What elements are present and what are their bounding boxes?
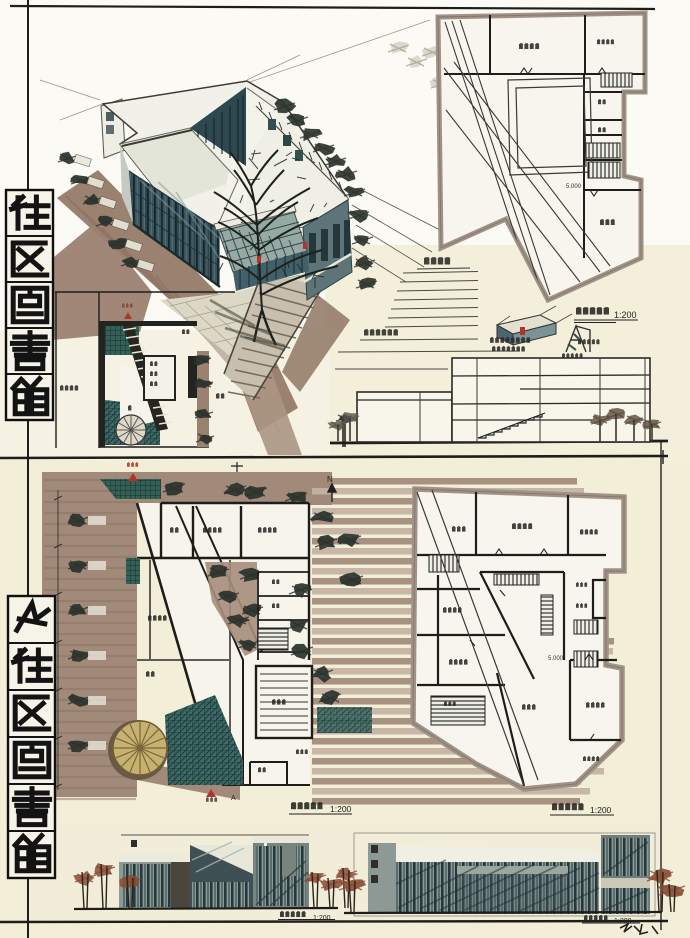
- svg-text:1:200: 1:200: [330, 804, 352, 814]
- svg-text:5.000: 5.000: [548, 656, 564, 662]
- svg-text:1:200: 1:200: [614, 918, 632, 925]
- svg-text:A: A: [231, 795, 236, 802]
- svg-text:1:200: 1:200: [614, 310, 637, 320]
- svg-text:1:200: 1:200: [590, 805, 612, 815]
- svg-text:N: N: [327, 475, 333, 484]
- svg-text:1:200: 1:200: [313, 915, 331, 922]
- svg-text:5.000: 5.000: [566, 184, 582, 190]
